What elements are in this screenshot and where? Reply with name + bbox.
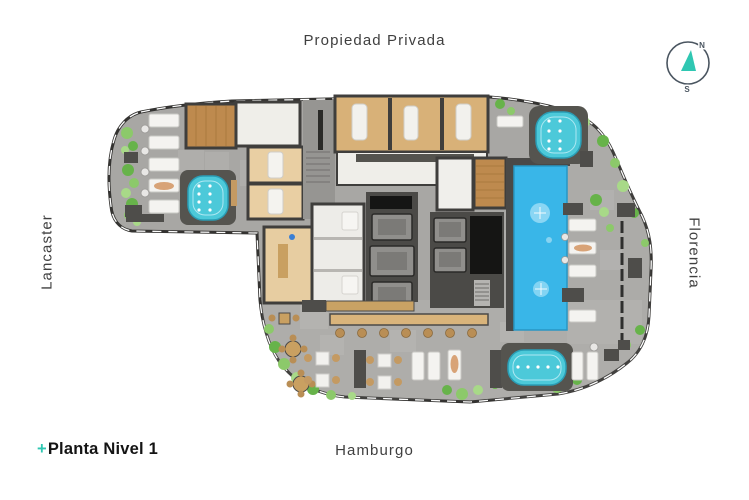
white-room (236, 102, 300, 146)
lounger (149, 200, 179, 213)
service-block (302, 300, 326, 312)
elevator-car (372, 214, 412, 240)
back-counter (326, 301, 414, 311)
lounger (569, 219, 596, 231)
steam-room (437, 158, 473, 210)
lounger (569, 310, 596, 322)
treatment-rooms (335, 96, 488, 152)
person-sunbathing (574, 245, 592, 252)
person-sunbathing (154, 182, 174, 190)
treatment-table (456, 104, 471, 140)
floorplan-drawing: N S (0, 0, 749, 500)
planter-box (604, 349, 619, 361)
side-table (590, 343, 598, 351)
massage-room (248, 184, 303, 219)
lounger (149, 158, 179, 171)
treatment-table (404, 106, 418, 140)
compass-needle (681, 50, 696, 71)
elevator-car (434, 218, 466, 242)
compass-north-label: N (699, 41, 705, 50)
floorplan-page: Propiedad Privada Lancaster Florencia Ha… (0, 0, 749, 500)
jacuzzi-bottom (501, 343, 573, 391)
massage-room (248, 147, 303, 183)
jacuzzi-bench (231, 180, 237, 206)
jacuzzi-left (180, 170, 237, 225)
elevator-car (370, 246, 414, 276)
lounger (428, 352, 440, 380)
lounger (149, 114, 179, 127)
lounger (412, 352, 424, 380)
treatment-table (352, 104, 367, 140)
gym-room (264, 227, 314, 303)
lounger (572, 352, 583, 380)
compass-south-label: S (684, 85, 690, 94)
compass: N S (667, 41, 709, 94)
stairwell (474, 280, 490, 306)
bathrooms (312, 204, 364, 304)
lounger (497, 116, 523, 127)
planter-box (618, 340, 630, 350)
person-sunbathing (451, 355, 459, 373)
bar-counter (330, 314, 488, 325)
main-pool (506, 158, 570, 331)
lounger (569, 265, 596, 277)
lounger (149, 136, 179, 149)
corridor-stairs (303, 100, 335, 219)
pool-water (514, 166, 567, 330)
sauna-room-left (186, 104, 236, 148)
shaft-block (470, 216, 502, 274)
corridor-wall (318, 110, 323, 150)
shaft-block (370, 196, 412, 209)
elevator-car (434, 248, 466, 272)
lounger (587, 352, 598, 380)
sauna-room-right (474, 158, 506, 208)
